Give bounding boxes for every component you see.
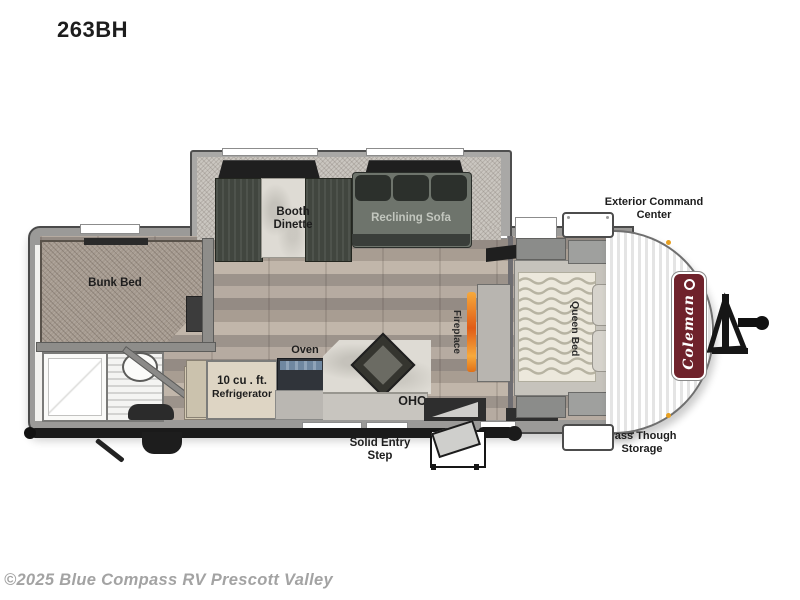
fireplace-cabinet [477,284,511,382]
queen-mattress [518,272,596,382]
coleman-badge: Coleman [672,272,706,380]
dealer-watermark: ©2025 Blue Compass RV Prescott Valley [4,571,333,590]
clearance-light-top [666,240,671,245]
bunk-window-sill [84,238,148,245]
ohc-label: OHC [370,394,426,408]
step-foot-2 [474,464,479,470]
undercarriage-tank [142,432,182,454]
coleman-brand-label: Coleman [681,294,697,370]
window-panel-2 [515,217,557,239]
pass-through-storage-door [562,424,614,451]
sofa-backrest-1 [355,175,391,201]
step-foot-1 [431,464,436,470]
range-oven [277,358,327,392]
exterior-command-center-label: Exterior Command Center [592,196,716,221]
fireplace-label: Fireplace [451,302,462,362]
toilet [128,404,174,420]
shower [42,352,108,422]
bunk-ladder [186,296,203,332]
mattress-wave-pattern [519,273,595,381]
clearance-light-bottom [666,413,671,418]
coleman-lantern-icon [684,279,695,290]
entry-mat [424,398,486,421]
page-title: 263BH [57,17,128,42]
range-cabinet [275,390,327,420]
panel-screw-1 [567,216,570,219]
bedroom-cabinet-bottom [516,396,566,418]
sofa-backrest-2 [393,175,429,201]
bunk-side-wall [202,238,214,346]
bedroom-cabinet-top [516,238,566,260]
reclining-sofa-label: Reclining Sofa [352,212,470,225]
queen-bed-label: Queen Bed [569,294,581,364]
shower-glass [48,358,102,416]
entry-mat-detail [432,402,478,417]
slideout-window-strip-2 [366,148,464,156]
fireplace-glow [467,292,476,372]
bunk-bed-label: Bunk Bed [60,277,170,290]
oven-label: Oven [283,344,327,357]
stabilizer-jack [95,438,125,463]
sofa-front-edge [352,234,470,246]
bumper-end-cap [24,427,36,439]
floorplan-page: 263BH Booth Dinette Reclining Sofa Bunk … [0,0,800,600]
roller-end-cap [507,426,522,441]
entry-step-frame [430,430,486,468]
sofa-backrest-3 [431,175,467,201]
hitch-icon [700,290,772,366]
range-burners [280,361,322,370]
solid-entry-step-label: Solid Entry Step [330,437,430,463]
booth-dinette-label: Booth Dinette [228,206,358,232]
slideout-window-1 [218,160,320,179]
window-bunk-top [80,224,140,234]
slideout-window-strip-1 [222,148,318,156]
kitchen-sink-basin [363,345,403,385]
